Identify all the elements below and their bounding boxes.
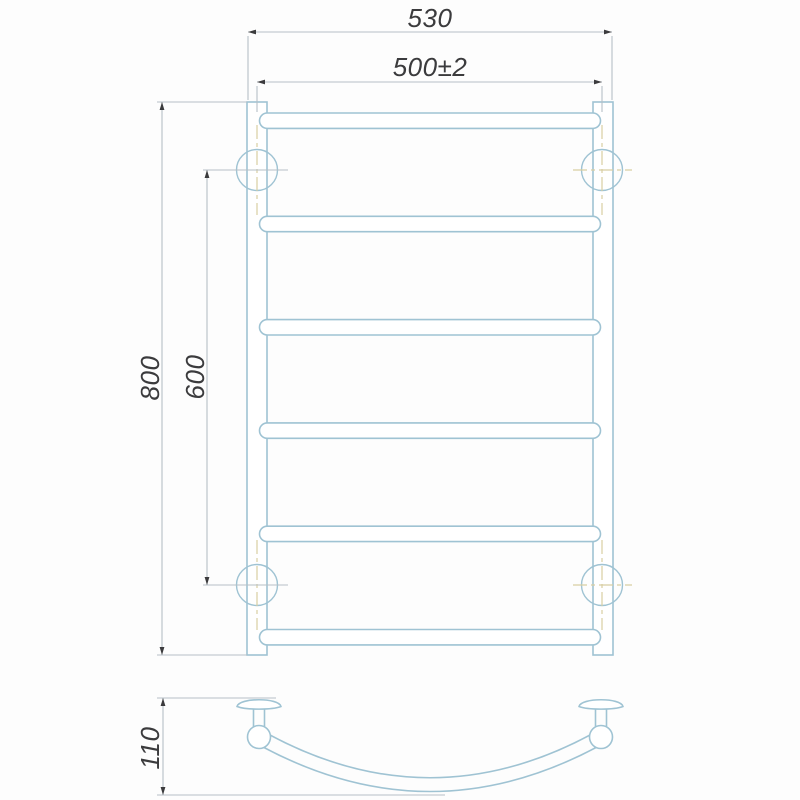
arrowhead <box>161 787 166 795</box>
towel-bar <box>260 423 601 438</box>
wall-plate <box>579 700 623 709</box>
drawing-canvas: 530 500±2 800 600 <box>0 0 800 800</box>
towel-bar <box>260 630 601 645</box>
towel-bar <box>260 320 601 335</box>
dimension-bar-length: 500±2 <box>257 52 602 112</box>
right-rail <box>593 102 613 655</box>
rung-group <box>260 113 601 645</box>
dim-label-bar-length: 500±2 <box>393 52 468 82</box>
dim-label-depth: 110 <box>135 726 165 769</box>
towel-bar <box>260 216 601 231</box>
towel-bar <box>260 113 601 128</box>
towel-rail-technical-drawing: 530 500±2 800 600 <box>0 0 800 800</box>
side-view <box>237 700 623 792</box>
arrowhead <box>248 30 256 35</box>
tube-section-circle <box>248 726 271 749</box>
dimension-depth: 110 <box>135 698 445 795</box>
dim-label-bracket-spacing: 600 <box>180 355 210 400</box>
arrowhead <box>161 698 166 706</box>
towel-bar <box>260 526 601 541</box>
tube-section-circle <box>590 726 613 749</box>
arrowhead <box>594 80 602 85</box>
arrowhead <box>205 577 210 585</box>
arrowhead <box>205 170 210 178</box>
dim-label-overall-height: 800 <box>135 356 165 401</box>
front-view <box>237 102 633 655</box>
curved-tube-outer <box>263 747 597 792</box>
arrowhead <box>257 80 265 85</box>
wall-plate <box>237 700 281 709</box>
dim-label-overall-width: 530 <box>408 3 453 33</box>
arrowhead <box>160 647 165 655</box>
arrowhead <box>604 30 612 35</box>
arrowhead <box>160 102 165 110</box>
